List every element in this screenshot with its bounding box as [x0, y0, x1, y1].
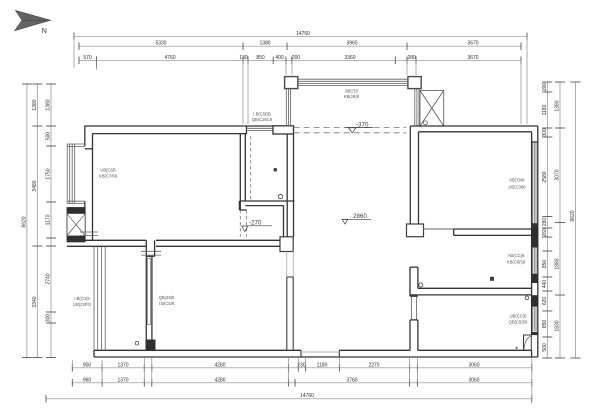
- svg-text:14760: 14760: [300, 393, 314, 399]
- svg-text:1830: 1830: [555, 320, 561, 331]
- svg-text:1170: 1170: [46, 214, 52, 225]
- svg-text:400: 400: [275, 55, 284, 61]
- svg-text:3480: 3480: [32, 180, 38, 191]
- svg-text:200: 200: [292, 55, 301, 61]
- svg-text:850: 850: [542, 260, 548, 269]
- svg-text:UB(C6B: UB(C6B: [100, 168, 116, 173]
- svg-text:KB(C6(58: KB(C6(58: [507, 260, 526, 265]
- svg-text:UB(23P/2: UB(23P/2: [73, 302, 92, 307]
- svg-text:960: 960: [83, 377, 92, 383]
- svg-text:QB(29(8: QB(29(8: [159, 295, 175, 300]
- svg-text:I.B(C5/8: I.B(C5/8: [159, 301, 175, 306]
- svg-text:UB(CC)8: UB(CC)8: [510, 314, 528, 319]
- svg-text:1380: 1380: [46, 99, 52, 110]
- svg-text:1880: 1880: [555, 258, 561, 269]
- svg-text:1380: 1380: [32, 99, 38, 110]
- svg-text:4760: 4760: [164, 55, 175, 61]
- svg-text:QB(C5(58: QB(C5(58: [509, 320, 529, 325]
- svg-text:I.B(C5BB: I.B(C5BB: [253, 112, 271, 117]
- svg-text:850: 850: [256, 55, 265, 61]
- svg-text:900: 900: [83, 362, 92, 368]
- svg-text:1370: 1370: [117, 362, 128, 368]
- svg-text:130: 130: [239, 55, 248, 61]
- svg-text:14760: 14760: [296, 31, 310, 37]
- svg-text:1380: 1380: [555, 100, 561, 111]
- svg-text:280: 280: [407, 55, 416, 61]
- svg-text:3360: 3360: [344, 55, 355, 61]
- svg-text:440: 440: [542, 280, 548, 289]
- svg-text:3060: 3060: [468, 362, 479, 368]
- svg-text:3670: 3670: [467, 41, 478, 47]
- svg-text:8620: 8620: [22, 216, 28, 227]
- svg-text:200: 200: [542, 83, 548, 92]
- svg-text:850: 850: [542, 320, 548, 329]
- svg-text:4280: 4280: [214, 362, 225, 368]
- svg-text:1180: 1180: [542, 104, 548, 115]
- svg-text:2270: 2270: [368, 362, 379, 368]
- svg-text:3670: 3670: [467, 55, 478, 61]
- svg-text:6B(7)48: 6B(7)48: [510, 178, 526, 183]
- svg-text:2740: 2740: [46, 273, 52, 284]
- svg-text:3340: 3340: [32, 296, 38, 307]
- svg-text:1370: 1370: [117, 377, 128, 383]
- svg-text:500: 500: [46, 132, 52, 141]
- svg-text:620: 620: [542, 297, 548, 306]
- svg-text:KB(C7/68: KB(C7/68: [99, 174, 118, 179]
- svg-text:300: 300: [542, 128, 548, 137]
- svg-text:4280: 4280: [214, 377, 225, 383]
- svg-text:260: 260: [542, 228, 548, 237]
- svg-text:3960: 3960: [346, 41, 357, 47]
- svg-text:300: 300: [46, 314, 52, 323]
- svg-text:1380: 1380: [259, 41, 270, 47]
- svg-text:3070: 3070: [555, 169, 561, 180]
- svg-text:8620: 8620: [570, 210, 576, 221]
- svg-text:KB(26(8: KB(26(8: [344, 94, 360, 99]
- svg-text:1750: 1750: [46, 168, 52, 179]
- svg-text:570: 570: [83, 55, 92, 61]
- svg-text:500: 500: [542, 343, 548, 352]
- svg-text:280: 280: [542, 218, 548, 227]
- svg-text:1180: 1180: [317, 362, 328, 368]
- svg-text:N: N: [42, 26, 47, 35]
- svg-text:UB(C368: UB(C368: [508, 185, 526, 190]
- svg-text:2580: 2580: [542, 171, 548, 182]
- svg-text:5330: 5330: [155, 41, 166, 47]
- svg-text:3060: 3060: [468, 377, 479, 383]
- svg-text:3760: 3760: [346, 377, 357, 383]
- svg-text:QB(C26C8: QB(C26C8: [252, 117, 273, 122]
- svg-text:AB(CC(8: AB(CC(8: [508, 253, 525, 258]
- svg-text:I.B(C1/8: I.B(C1/8: [74, 296, 90, 301]
- svg-text:6B(7)8: 6B(7)8: [345, 89, 358, 94]
